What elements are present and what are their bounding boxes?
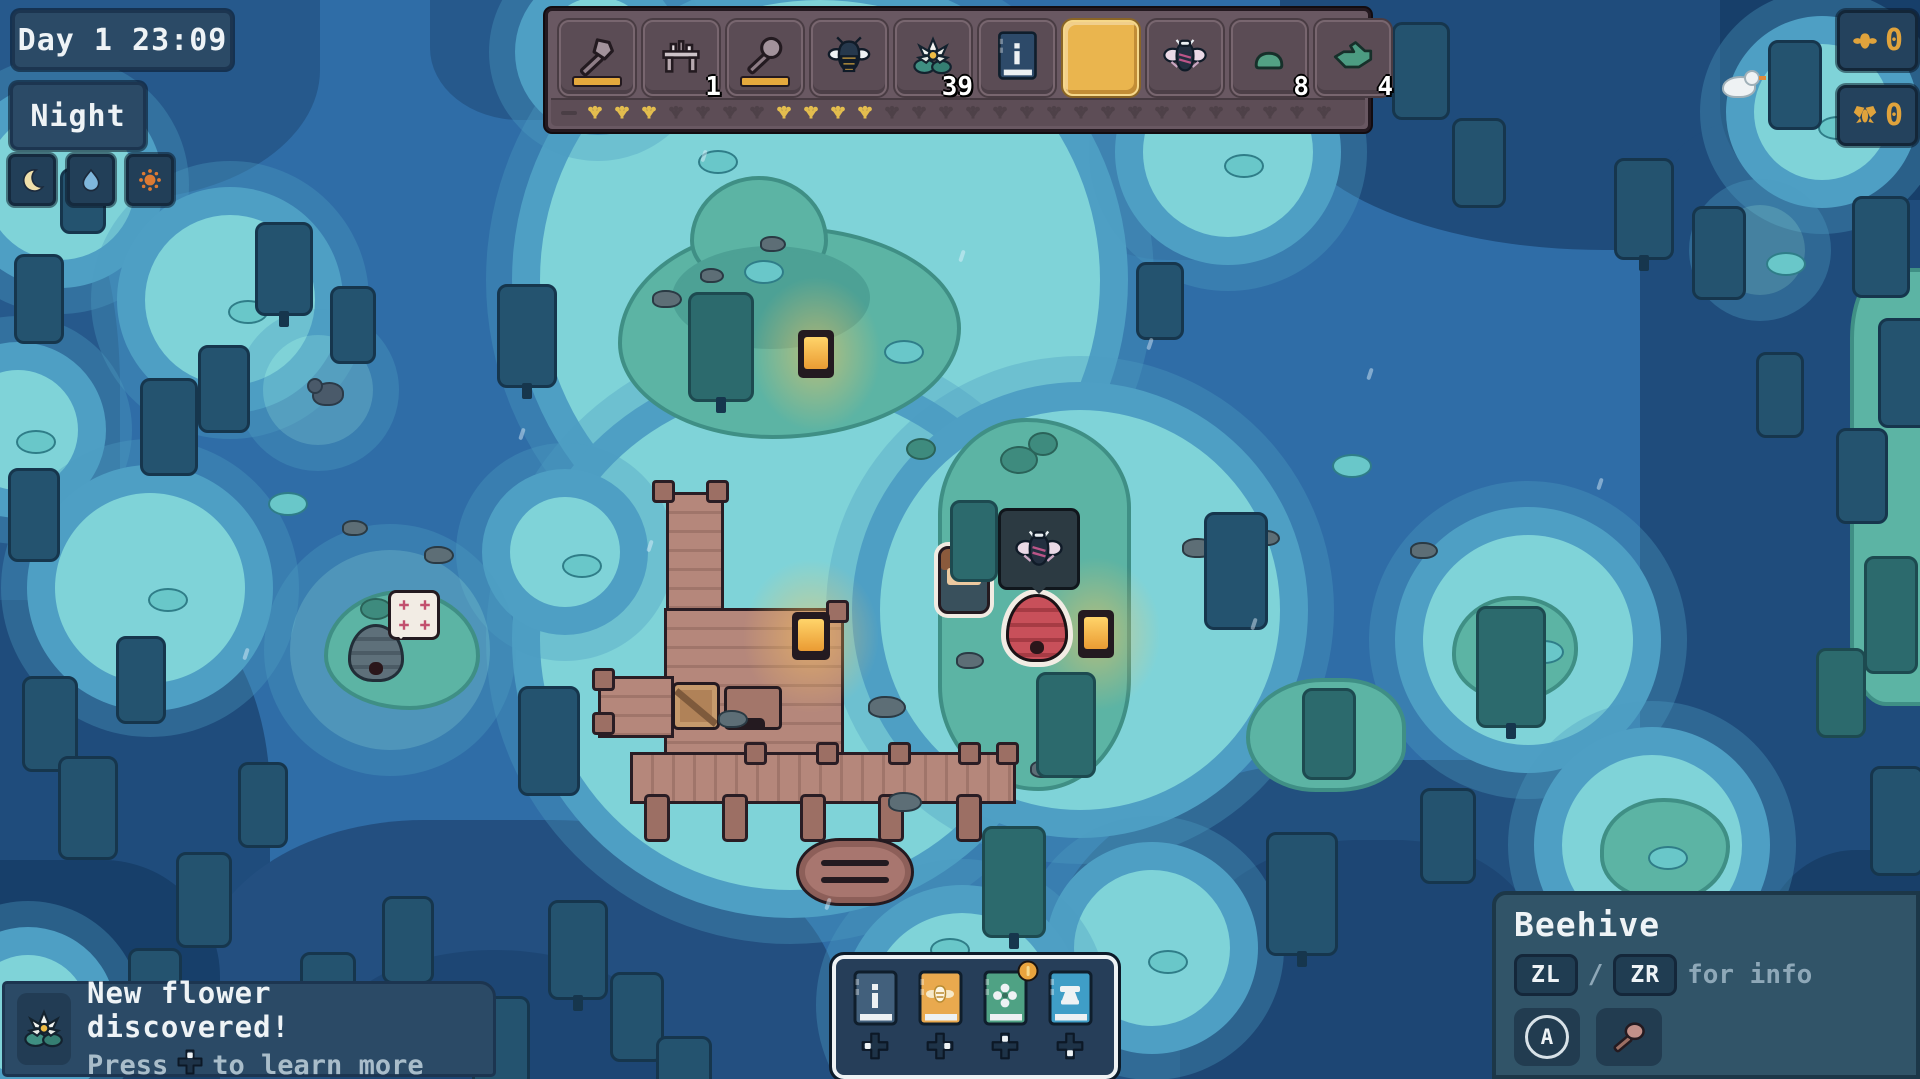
dock-post-cap [652,480,675,503]
moth-counter: 0 [1837,85,1918,146]
flower-progress-icon [775,104,793,122]
tooltip-hint: for info [1687,960,1812,990]
notification-flower-icon [17,993,71,1065]
lantern[interactable] [1078,610,1114,658]
zr-button-hint: ZR [1613,954,1677,996]
counter-value: 0 [1885,98,1903,133]
flower-progress-icon [1180,104,1198,122]
flower-progress-icon [1261,104,1279,122]
tree [1136,262,1184,340]
sun-icon [126,154,174,206]
workbench-icon [659,34,703,82]
tree-trunk [1639,255,1649,271]
creature-counters: 00 [1837,10,1918,146]
day-phase-label: Night [30,99,125,134]
durability-bar [572,76,622,87]
tree [656,1036,712,1079]
info-book-icon [995,30,1039,85]
lantern[interactable] [792,612,830,660]
a-button-hint: A [1514,1008,1580,1066]
rock [652,290,682,308]
dpad-down-icon [1055,1031,1085,1061]
notification-panel[interactable]: New flower discovered! Press to learn mo… [2,981,496,1077]
tree-trunk [573,995,583,1011]
lily-pad [1224,154,1264,178]
hotbar-slot-2[interactable]: 1 [643,20,719,96]
lily-pad [268,492,308,516]
tree [116,636,166,724]
water-sparkle [1596,478,1604,491]
flower-progress-icon [1099,104,1117,122]
flower-progress-icon [1018,104,1036,122]
rock [342,520,368,536]
hotbar-panel: 13984 [545,8,1371,132]
moth-icon [1163,34,1207,82]
flower-progress-bar [551,98,1365,126]
flower-progress-icon [748,104,766,122]
axe-icon [575,34,619,82]
tree [1452,118,1506,208]
notification-subtitle-pre: Press [87,1050,168,1079]
weather-forecast-row [8,154,174,206]
wild-hive-badge [388,590,440,640]
tree [497,284,557,388]
lily-pad [562,554,602,578]
dock-pylon [722,794,748,842]
a-button-letter: A [1525,1015,1569,1059]
rock [760,236,786,252]
flower-progress-icon [694,104,712,122]
dock-post-cap [996,742,1019,765]
mallet-icon [743,34,787,82]
tree [1302,688,1356,780]
seagull-bird [1722,76,1756,98]
flower-progress-icon [667,104,685,122]
day-time-panel: Day 1 23:09 [12,10,233,70]
dock-post-cap [744,742,767,765]
hotbar-slot-5[interactable]: 39 [895,20,971,96]
tree [1204,512,1268,630]
flower-progress-icon [721,104,739,122]
game-screen: Day 1 23:09 Night 13984 00 New flower di… [0,0,1920,1079]
tooltip-title: Beehive [1514,905,1898,944]
water-sparkle [242,648,250,661]
lily-pad [1766,252,1806,276]
flower-progress-icon [937,104,955,122]
hotbar-slot-1[interactable] [559,20,635,96]
dock-post-cap [592,668,615,691]
flower-progress-icon [964,104,982,122]
mallet-action-icon [1596,1008,1662,1066]
hotbar-slot-10[interactable]: 4 [1315,20,1391,96]
lily-pad [1148,950,1188,974]
flower-progress-icon [613,104,631,122]
flower-progress-icon [1207,104,1225,122]
tree [1836,428,1888,524]
tree-trunk [279,311,289,327]
tree [1420,788,1476,884]
dock-pylon [956,794,982,842]
flower-progress-icon [1288,104,1306,122]
tree [1878,318,1920,428]
tree [548,900,608,1000]
green-blob-icon [1247,34,1291,82]
tree [1864,556,1918,674]
tree [1852,196,1910,298]
flower-progress-icon [829,104,847,122]
dock-post-cap [816,742,839,765]
tree [982,826,1046,938]
coin-badge-icon [1017,960,1039,986]
lily-pad [1332,454,1372,478]
durability-bar [740,76,790,87]
zl-button-hint: ZL [1514,954,1578,996]
flower-progress-icon [910,104,928,122]
hotbar-slot-4[interactable] [811,20,887,96]
rock [424,546,454,564]
dock-post-cap [888,742,911,765]
flower-progress-icon [856,104,874,122]
tree [1392,22,1450,120]
tool-book[interactable] [1045,969,1095,1027]
flower-progress-icon [1153,104,1171,122]
dpad-right-icon [925,1031,955,1061]
flower-progress-icon [1234,104,1252,122]
info-book-large[interactable] [850,969,900,1027]
notification-subtitle: Press to learn more [87,1048,493,1079]
bee-book[interactable] [915,969,965,1027]
pigeon-bird [312,382,344,406]
water-drop-icon [67,154,115,206]
tree [1614,158,1674,260]
hotbar-slot-7[interactable] [1063,20,1139,96]
hotbar-slot-3[interactable] [727,20,803,96]
day-time-label: Day 1 23:09 [18,23,228,58]
hotbar-slot-9[interactable]: 8 [1231,20,1307,96]
tree [1036,672,1096,778]
beehive-tooltip-panel: Beehive ZL / ZR for info A [1492,891,1920,1079]
tree-trunk [522,383,532,399]
dock-pylon [644,794,670,842]
book-dock-books [850,969,1095,1027]
dock-walkway [666,492,724,622]
tree-trunk [1506,723,1516,739]
tree [1816,648,1866,738]
flower-progress-icon [802,104,820,122]
speech-bubble-bee [998,508,1080,590]
bee-counter: 0 [1837,10,1918,71]
tree [1476,606,1546,728]
moth-gold-icon [1852,103,1878,129]
dpad-up-icon [990,1031,1020,1061]
rock [1410,542,1438,559]
dock-post-cap [706,480,729,503]
tree [58,756,118,860]
bush [1028,432,1058,456]
flower-progress-icon [991,104,1009,122]
tree [8,468,60,562]
rowboat[interactable] [796,838,914,906]
dock-pylon [800,794,826,842]
tree [1768,40,1822,130]
rock [888,792,922,812]
hotbar-slot-6[interactable] [979,20,1055,96]
dpad-up-icon [176,1048,204,1079]
hotbar-slots: 13984 [559,20,1391,96]
tree-trunk [716,397,726,413]
flower-progress-dash [561,111,577,115]
counter-value: 0 [1885,23,1903,58]
tree [518,686,580,796]
dock-post-cap [958,742,981,765]
flower-progress-icon [586,104,604,122]
flower-progress-icon [1315,104,1333,122]
tree [255,222,313,316]
flower-progress-icon [1045,104,1063,122]
notification-subtitle-post: to learn more [212,1050,423,1079]
tree [1692,206,1746,300]
tree-trunk [1009,933,1019,949]
tree [238,762,288,848]
flower-progress-icon [1072,104,1090,122]
rock [718,710,748,728]
tree [950,500,998,582]
lantern-light-glow [510,497,620,607]
notification-title: New flower discovered! [87,976,493,1044]
dock-post-cap [592,712,615,735]
tree [1756,352,1804,438]
tree [382,896,434,984]
book-dock-dpad-hints [850,1031,1085,1061]
lily-pad [1648,846,1688,870]
flower-progress-icon [1126,104,1144,122]
rock [700,268,724,283]
bee-gold-icon [1852,28,1878,54]
lily-pad [744,260,784,284]
tree [176,852,232,948]
flower-progress-icon [640,104,658,122]
tree [140,378,198,476]
flower-book[interactable] [980,969,1030,1027]
rock [868,696,906,718]
tree [198,345,250,433]
day-phase-panel: Night [10,82,146,150]
lily-pad [16,430,56,454]
bee-icon [827,34,871,82]
moon-icon [8,154,56,206]
lily-pad [148,588,188,612]
bush [906,438,936,460]
rock [956,652,984,669]
paddle-icon [1331,34,1375,82]
tree [1870,766,1920,876]
lily-pad [884,340,924,364]
book-dock-panel [832,955,1118,1079]
hotbar-slot-8[interactable] [1147,20,1223,96]
tree-trunk [1297,951,1307,967]
dpad-left-icon [860,1031,890,1061]
slot-count: 4 [1377,72,1393,102]
lantern[interactable] [798,330,834,378]
flower-progress-icon [883,104,901,122]
tree [1266,832,1338,956]
tree [14,254,64,344]
tree [330,286,376,364]
button-separator: / [1588,960,1604,990]
wooden-crate[interactable] [672,682,720,730]
tree [688,292,754,402]
